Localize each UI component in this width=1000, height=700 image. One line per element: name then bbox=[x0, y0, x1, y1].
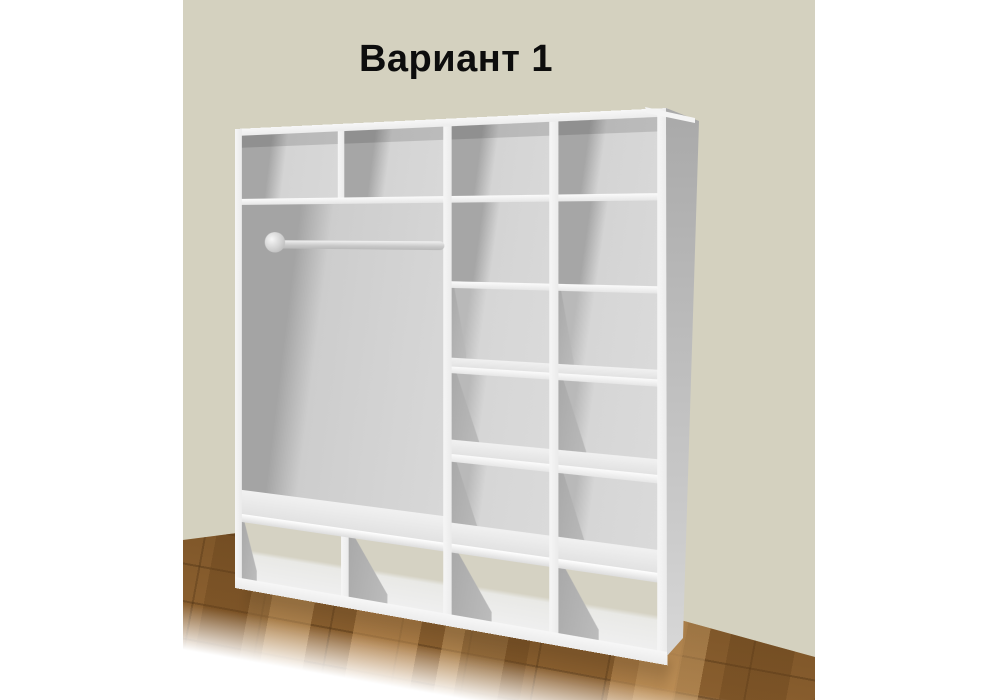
shelf-cell-right-row3 bbox=[558, 291, 657, 380]
compartment-top-left-2 bbox=[344, 127, 443, 198]
compartment-top-center bbox=[452, 122, 550, 196]
left-side-panel bbox=[235, 129, 242, 590]
hanging-compartment bbox=[242, 203, 443, 543]
shelf-cell-center-row3 bbox=[452, 288, 550, 373]
divider-side-face bbox=[452, 373, 480, 457]
divider-side-face bbox=[558, 568, 599, 640]
shelf-cell-right-row4 bbox=[558, 380, 657, 475]
divider-side-face bbox=[349, 538, 388, 604]
right-white-margin bbox=[815, 0, 1000, 700]
shelf-cell-right-row2 bbox=[558, 200, 657, 286]
compartment-top-right bbox=[558, 117, 657, 195]
left-white-margin bbox=[0, 0, 183, 700]
divider-side-face bbox=[558, 291, 573, 374]
shelf-cell-center-row5 bbox=[452, 462, 550, 558]
divider-side-face bbox=[242, 522, 257, 581]
shelf-cell-center-row2 bbox=[452, 202, 550, 284]
main-divider bbox=[443, 126, 451, 614]
right-side-panel-inner bbox=[657, 108, 667, 665]
divider-side-face bbox=[558, 380, 587, 468]
wardrobe-front bbox=[235, 108, 667, 665]
wardrobe-render bbox=[235, 108, 667, 665]
top-row-divider bbox=[338, 131, 345, 198]
right-column-divider bbox=[549, 121, 558, 633]
bottom-left-divider bbox=[341, 536, 349, 596]
divider-side-face bbox=[452, 553, 492, 622]
scene: Вариант 1 bbox=[0, 0, 1000, 700]
variant-title: Вариант 1 bbox=[156, 38, 756, 81]
divider-side-face bbox=[452, 288, 467, 368]
shelf-cell-right-row5 bbox=[558, 473, 657, 573]
divider-side-face bbox=[558, 473, 587, 563]
compartment-top-left-1 bbox=[242, 131, 338, 199]
divider-side-face bbox=[452, 462, 480, 548]
shelf-cell-center-row4 bbox=[452, 373, 550, 464]
rod-flange bbox=[265, 232, 285, 253]
